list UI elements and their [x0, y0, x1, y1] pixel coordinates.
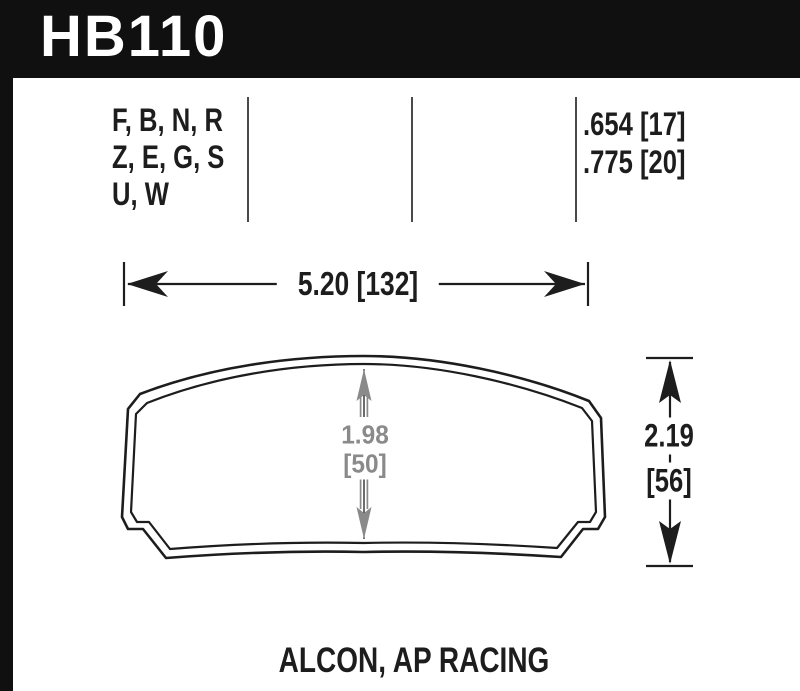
applications-text: ALCON, AP RACING: [279, 641, 550, 681]
width-dimension-label: 5.20 [132]: [277, 265, 439, 303]
center-height-value-mm: [50]: [343, 449, 386, 480]
width-dimension-value: 5.20 [132]: [298, 265, 418, 303]
catalog-page: HB110 F, B, N, R Z, E, G, S U, W .654 [1…: [0, 0, 800, 691]
applications-footer: ALCON, AP RACING: [245, 641, 583, 681]
center-height-label-in: 1.98: [336, 420, 395, 451]
height-dimension-value-in: 2.19: [644, 418, 694, 455]
height-dimension-label-mm: [56]: [635, 463, 704, 500]
center-height-value-in: 1.98: [341, 420, 389, 451]
height-dimension-value-mm: [56]: [646, 463, 692, 500]
center-height-label-mm: [50]: [338, 449, 392, 480]
height-dimension-label-in: 2.19: [632, 418, 706, 455]
technical-drawing: [0, 0, 800, 691]
